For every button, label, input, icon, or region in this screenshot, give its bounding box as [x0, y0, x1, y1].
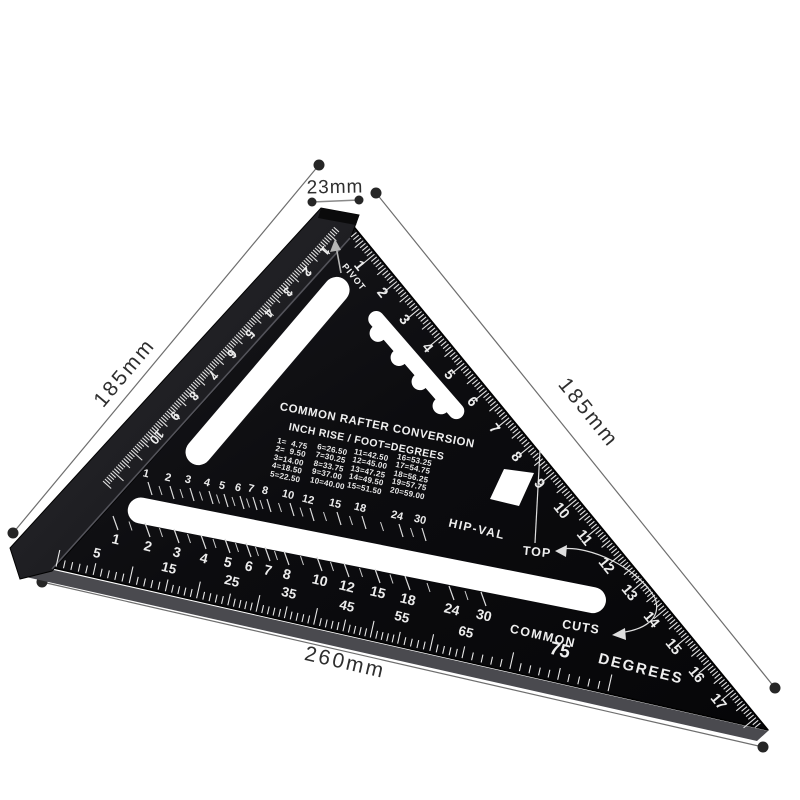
scale-number: 12 — [338, 576, 357, 595]
scale-number: 30 — [475, 605, 494, 624]
scale-number: 24 — [443, 599, 462, 618]
top-label: TOP — [522, 544, 552, 561]
scale-number: 18 — [399, 589, 418, 608]
scale-number: 10 — [311, 570, 330, 589]
dimension-line-top — [312, 200, 359, 202]
scale-number: 15 — [369, 582, 388, 601]
speed-square-product-photo: 23mm 185mm 185mm 260mm PIVOT HIP-VAL COM… — [0, 0, 800, 800]
dimension-top-label: 23mm — [306, 177, 363, 200]
